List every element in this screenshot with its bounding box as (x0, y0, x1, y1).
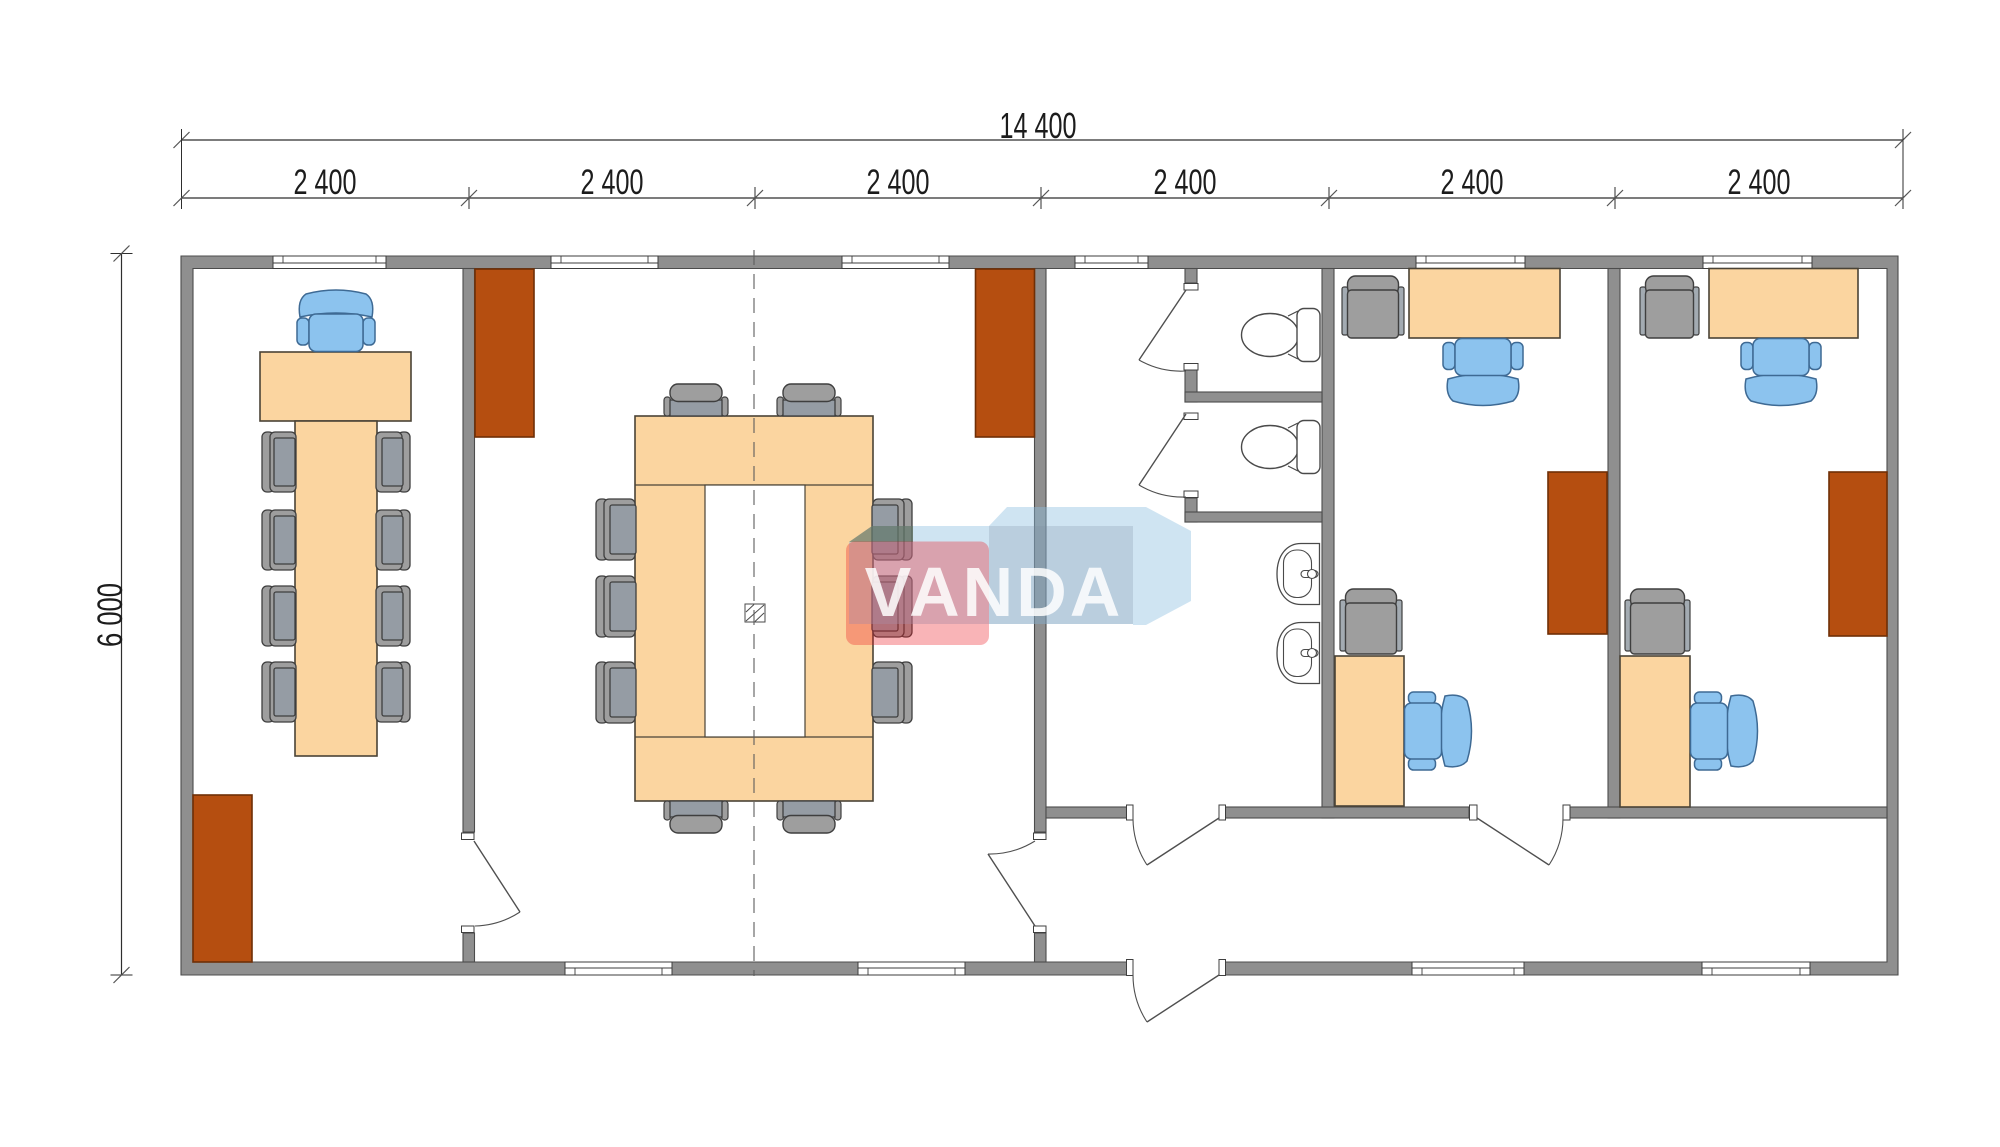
svg-text:VANDA: VANDA (865, 553, 1124, 631)
svg-text:2 400: 2 400 (581, 163, 644, 202)
svg-text:2 400: 2 400 (1728, 163, 1791, 202)
svg-text:2 400: 2 400 (1441, 163, 1504, 202)
svg-text:14 400: 14 400 (1000, 105, 1077, 146)
svg-text:2 400: 2 400 (867, 163, 930, 202)
svg-text:2 400: 2 400 (294, 163, 357, 202)
svg-text:6 000: 6 000 (91, 583, 130, 647)
svg-text:2 400: 2 400 (1154, 163, 1217, 202)
